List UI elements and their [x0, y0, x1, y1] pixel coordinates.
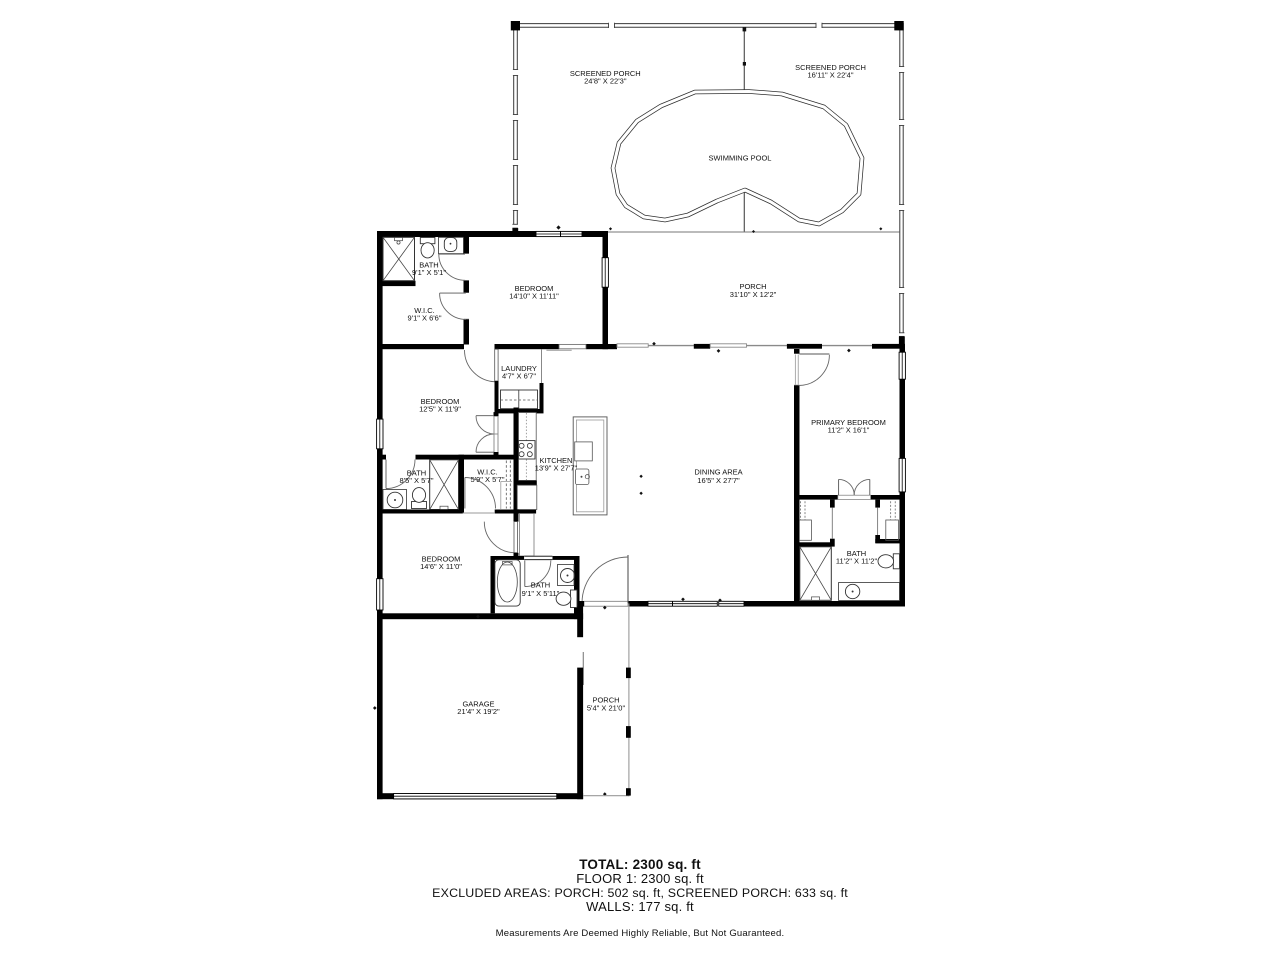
svg-text:21'4" X 19'2": 21'4" X 19'2": [457, 707, 500, 716]
svg-text:16'5" X 27'7": 16'5" X 27'7": [697, 476, 740, 485]
svg-text:31'10" X 12'2": 31'10" X 12'2": [730, 290, 777, 299]
svg-text:8'5" X 5'7": 8'5" X 5'7": [399, 476, 433, 485]
svg-text:WALLS: 177 sq. ft: WALLS: 177 sq. ft: [586, 899, 694, 914]
svg-text:13'9" X 27'7": 13'9" X 27'7": [535, 464, 578, 473]
svg-text:TOTAL: 2300 sq. ft: TOTAL: 2300 sq. ft: [579, 857, 701, 872]
svg-text:9'1" X 5'11": 9'1" X 5'11": [522, 589, 560, 598]
svg-text:12'5" X 11'9": 12'5" X 11'9": [419, 405, 461, 414]
svg-text:9'1" X 5'1": 9'1" X 5'1": [412, 268, 446, 277]
svg-text:SWIMMING POOL: SWIMMING POOL: [709, 154, 772, 163]
svg-text:FLOOR 1: 2300 sq. ft: FLOOR 1: 2300 sq. ft: [576, 871, 704, 886]
svg-text:Measurements Are Deemed Highly: Measurements Are Deemed Highly Reliable,…: [496, 928, 785, 939]
svg-text:24'8" X 22'3": 24'8" X 22'3": [584, 76, 627, 85]
svg-text:9'1" X 6'6": 9'1" X 6'6": [407, 314, 441, 323]
svg-text:11'2" X 11'2": 11'2" X 11'2": [836, 556, 878, 565]
svg-text:14'10" X 11'11": 14'10" X 11'11": [509, 291, 559, 300]
svg-text:11'2" X 16'1": 11'2" X 16'1": [828, 426, 870, 435]
svg-text:16'11" X 22'4": 16'11" X 22'4": [808, 71, 854, 80]
svg-text:14'6" X 11'0": 14'6" X 11'0": [420, 562, 462, 571]
svg-text:EXCLUDED AREAS: PORCH: 502 sq.: EXCLUDED AREAS: PORCH: 502 sq. ft, SCREE…: [432, 886, 848, 900]
svg-text:4'7" X 6'7": 4'7" X 6'7": [502, 372, 536, 381]
svg-text:5'4" X 21'0": 5'4" X 21'0": [587, 703, 626, 712]
